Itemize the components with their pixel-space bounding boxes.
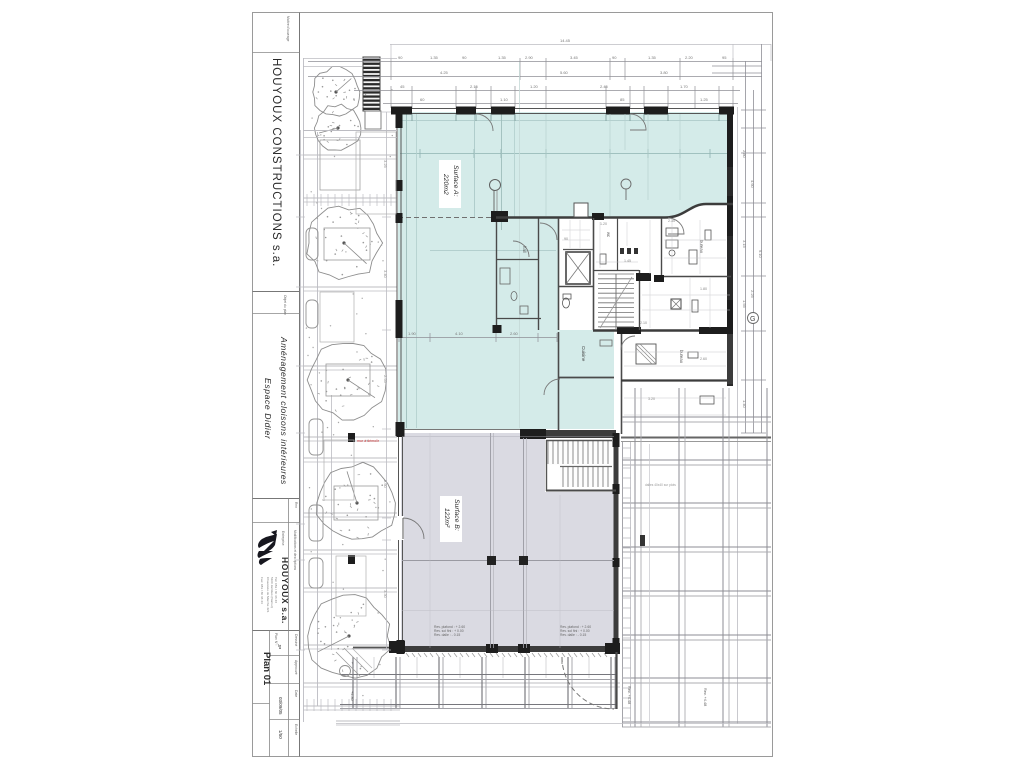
svg-text:90: 90 <box>612 55 617 60</box>
svg-text:3.20: 3.20 <box>648 397 655 401</box>
svg-text:1.35: 1.35 <box>498 55 507 60</box>
svg-text:Modifications et descriptions: Modifications et descriptions <box>293 530 297 570</box>
svg-text:Chaussée de Marche 421: Chaussée de Marche 421 <box>266 577 270 613</box>
svg-text:45: 45 <box>400 84 405 89</box>
svg-text:2.45: 2.45 <box>600 84 609 89</box>
svg-text:G: G <box>750 316 755 323</box>
svg-text:Rev. +4.48: Rev. +4.48 <box>627 686 631 704</box>
svg-text:2.60: 2.60 <box>383 480 388 489</box>
svg-text:03/09/05: 03/09/05 <box>278 697 283 715</box>
svg-text:95: 95 <box>722 55 727 60</box>
svg-text:Dessiné: Dessiné <box>294 634 298 646</box>
svg-text:1.55: 1.55 <box>742 300 747 309</box>
svg-text:1.25: 1.25 <box>700 97 709 102</box>
svg-text:1.20: 1.20 <box>530 84 539 89</box>
svg-text:wc: wc <box>606 232 611 237</box>
svg-text:hall: hall <box>522 246 527 253</box>
svg-text:2.10: 2.10 <box>640 321 647 325</box>
svg-text:Rev. dalle : - 0.15: Rev. dalle : - 0.15 <box>560 633 586 637</box>
svg-text:2.15: 2.15 <box>470 84 479 89</box>
svg-text:+4.30: +4.30 <box>350 691 354 701</box>
svg-text:Approuvé: Approuvé <box>294 660 298 675</box>
svg-text:5100 Jambes (Namur): 5100 Jambes (Namur) <box>270 577 274 608</box>
svg-text:HOUYOUX s.a.: HOUYOUX s.a. <box>280 557 290 624</box>
svg-text:1.10: 1.10 <box>500 97 509 102</box>
svg-text:3.40: 3.40 <box>383 270 388 279</box>
svg-text:Echelle: Echelle <box>294 724 298 735</box>
svg-text:14.45: 14.45 <box>560 38 571 43</box>
svg-text:Plan N°:: Plan N°: <box>274 633 278 646</box>
svg-text:90: 90 <box>398 55 403 60</box>
svg-text:Rev. +4.48: Rev. +4.48 <box>703 688 707 706</box>
svg-text:4.25: 4.25 <box>440 70 449 75</box>
svg-text:dalles 40x40 sur plots: dalles 40x40 sur plots <box>645 483 676 487</box>
svg-text:90: 90 <box>564 237 568 241</box>
svg-text:Objet du plan: Objet du plan <box>283 295 287 315</box>
svg-text:2.20: 2.20 <box>685 55 694 60</box>
svg-text:220m2: 220m2 <box>442 173 449 195</box>
svg-text:2.95: 2.95 <box>383 375 388 384</box>
svg-text:1.80: 1.80 <box>700 287 707 291</box>
svg-text:Entreprise: Entreprise <box>281 531 285 546</box>
svg-text:1.90: 1.90 <box>408 331 417 336</box>
svg-text:Rev. dalle : - 0.15: Rev. dalle : - 0.15 <box>434 633 460 637</box>
svg-text:1/50: 1/50 <box>278 730 283 739</box>
svg-text:HOUYOUX CONSTRUCTIONS s.a.: HOUYOUX CONSTRUCTIONS s.a. <box>270 58 282 267</box>
svg-text:Tél: 081 / 30 43 43: Tél: 081 / 30 43 43 <box>274 577 278 603</box>
svg-text:1.40: 1.40 <box>742 400 747 409</box>
svg-text:1.70: 1.70 <box>680 84 689 89</box>
svg-text:2.35: 2.35 <box>668 219 675 223</box>
svg-text:2.25: 2.25 <box>750 290 755 299</box>
svg-text:4.60: 4.60 <box>750 180 755 189</box>
svg-text:1.20: 1.20 <box>600 222 607 226</box>
svg-text:2.60: 2.60 <box>700 357 707 361</box>
svg-text:2.60: 2.60 <box>510 331 519 336</box>
svg-text:1.35: 1.35 <box>430 55 439 60</box>
svg-text:4.10: 4.10 <box>455 331 464 336</box>
svg-text:1.35: 1.35 <box>648 55 657 60</box>
svg-text:Maître d'ouvrage: Maître d'ouvrage <box>286 16 290 41</box>
svg-text:Cuisine: Cuisine <box>581 346 586 362</box>
svg-text:60: 60 <box>420 97 425 102</box>
svg-text:2.80: 2.80 <box>742 150 747 159</box>
svg-text:1.45: 1.45 <box>624 259 631 263</box>
svg-text:3.80: 3.80 <box>660 70 669 75</box>
svg-text:3.45: 3.45 <box>570 55 579 60</box>
svg-text:2.90: 2.90 <box>525 55 534 60</box>
svg-text:5.60: 5.60 <box>560 70 569 75</box>
svg-text:122m²: 122m² <box>443 508 450 528</box>
svg-text:Surface A:: Surface A: <box>452 165 459 197</box>
svg-text:Surface B:: Surface B: <box>453 499 460 531</box>
svg-text:85: 85 <box>620 97 625 102</box>
svg-text:Fax: 081 / 30 43 44: Fax: 081 / 30 43 44 <box>260 577 264 604</box>
svg-text:Espace Didier: Espace Didier <box>263 378 273 440</box>
svg-text:90: 90 <box>462 55 467 60</box>
svg-text:mur à démolir: mur à démolir <box>357 439 380 443</box>
svg-text:Plan 01: Plan 01 <box>261 652 272 686</box>
svg-text:3.25: 3.25 <box>383 160 388 169</box>
svg-text:3.30: 3.30 <box>383 590 388 599</box>
svg-text:Aménagement cloisons intérieur: Aménagement cloisons intérieures <box>279 336 289 485</box>
svg-text:Rev: Rev <box>294 502 298 508</box>
svg-text:9.10: 9.10 <box>758 250 763 259</box>
svg-text:Date: Date <box>294 690 298 697</box>
svg-text:3.15: 3.15 <box>742 240 747 249</box>
